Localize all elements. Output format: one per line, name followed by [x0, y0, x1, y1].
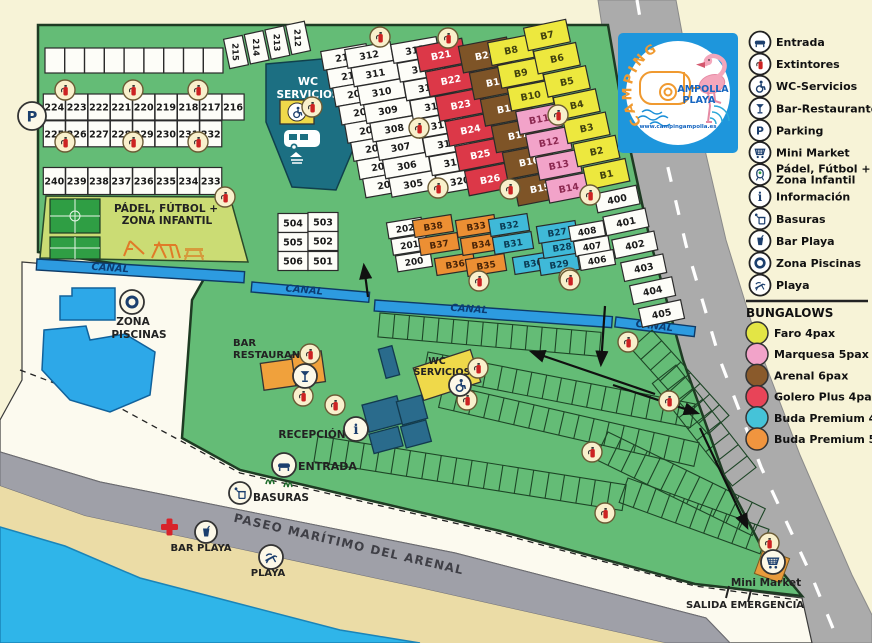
salida-emergencia-label: SALIDA EMERGENCIA — [686, 600, 804, 611]
extinguisher-icon — [325, 395, 345, 415]
svg-text:WC-Servicios: WC-Servicios — [776, 80, 858, 93]
svg-text:219: 219 — [156, 103, 176, 114]
extinguisher-icon — [55, 132, 75, 152]
camping-logo: CAMPING AMPOLLA PLAYA www.campingampolla… — [618, 33, 738, 153]
plot — [144, 48, 164, 73]
zona-piscinas-label-1: ZONA — [116, 316, 150, 328]
extinguisher-icon — [302, 97, 322, 117]
extinguisher-icon — [215, 187, 235, 207]
svg-text:213: 213 — [271, 34, 282, 52]
basuras-label: BASURAS — [253, 492, 309, 504]
svg-text:Mini Market: Mini Market — [776, 147, 850, 160]
entrada-label: ENTRADA — [298, 460, 357, 473]
plot-501: 501 — [308, 252, 338, 271]
svg-text:239: 239 — [67, 177, 87, 188]
extinguisher-icon — [428, 178, 448, 198]
svg-text:236: 236 — [134, 177, 154, 188]
legend-item: Pádel, Fútbol +Zona Infantil — [750, 163, 871, 187]
svg-text:238: 238 — [89, 177, 109, 188]
padel-zone: PÁDEL, FÚTBOL + ZONA INFANTIL — [40, 196, 248, 262]
extinguisher-icon — [370, 27, 390, 47]
svg-text:Arenal 6pax: Arenal 6pax — [774, 369, 848, 382]
mini-market-label: Mini Market — [731, 577, 801, 589]
extinguisher-icon — [468, 358, 488, 378]
svg-text:230: 230 — [156, 129, 176, 140]
extinguisher-icon — [560, 270, 580, 290]
svg-text:217: 217 — [201, 103, 221, 114]
logo-name-2: PLAYA — [683, 95, 716, 106]
plot — [85, 48, 105, 73]
logo-url: www.campingampolla.es — [639, 124, 717, 130]
svg-text:Bar-Restaurante: Bar-Restaurante — [776, 102, 872, 115]
plot-222: 222 — [88, 94, 110, 120]
svg-text:237: 237 — [111, 177, 131, 188]
plot — [45, 48, 65, 73]
padel-label-1: PÁDEL, FÚTBOL + — [114, 202, 218, 215]
plot-227: 227 — [88, 121, 110, 147]
svg-text:505: 505 — [283, 238, 303, 249]
svg-text:503: 503 — [313, 218, 333, 229]
svg-text:Faro 4pax: Faro 4pax — [774, 327, 835, 340]
svg-text:212: 212 — [291, 29, 302, 47]
plot — [203, 48, 223, 73]
svg-text:218: 218 — [178, 103, 198, 114]
svg-text:222: 222 — [89, 103, 109, 114]
svg-text:Marquesa 5pax: Marquesa 5pax — [774, 348, 869, 361]
extinguisher-icon — [438, 28, 458, 48]
svg-text:233: 233 — [201, 177, 221, 188]
extinguisher-icon — [55, 80, 75, 100]
extinguisher-icon — [300, 344, 320, 364]
plot-502: 502 — [308, 232, 338, 251]
plot — [104, 48, 124, 73]
basuras-icon — [229, 482, 251, 504]
mini-market-icon — [761, 550, 785, 574]
playa-icon — [259, 545, 283, 569]
svg-text:502: 502 — [313, 237, 333, 248]
logo-name-1: AMPOLLA — [677, 84, 729, 95]
extinguisher-icon — [595, 503, 615, 523]
svg-text:240: 240 — [44, 177, 64, 188]
plot-503: 503 — [308, 213, 338, 232]
svg-text:220: 220 — [134, 103, 154, 114]
playa-label: PLAYA — [251, 568, 286, 579]
recepcion-label: RECEPCIÓN — [278, 428, 345, 441]
extinguisher-icon — [293, 386, 313, 406]
svg-text:Información: Información — [776, 191, 850, 204]
extinguisher-icon — [618, 332, 638, 352]
parking-icon — [18, 102, 46, 130]
wc-top-label-1: WC — [298, 75, 318, 88]
extinguisher-icon — [500, 179, 520, 199]
plot-505: 505 — [278, 233, 308, 252]
informacion-icon — [344, 417, 368, 441]
campsite-map: P i — [0, 0, 872, 643]
plot-238: 238 — [88, 168, 110, 195]
plot — [164, 48, 184, 73]
svg-text:Buda Premium 5pax: Buda Premium 5pax — [774, 433, 872, 446]
extinguisher-icon — [123, 132, 143, 152]
svg-text:227: 227 — [89, 129, 109, 140]
camping-map-page: P i — [0, 0, 872, 643]
bar-playa-label: BAR PLAYA — [170, 543, 231, 554]
plot-234: 234 — [177, 168, 199, 195]
extinguisher-icon — [188, 80, 208, 100]
svg-text:Extintores: Extintores — [776, 58, 840, 71]
plot-235: 235 — [155, 168, 177, 195]
extinguisher-icon — [582, 442, 602, 462]
svg-text:Zona Piscinas: Zona Piscinas — [776, 257, 862, 270]
informacion-icon — [758, 190, 763, 204]
svg-text:214: 214 — [250, 38, 261, 56]
parking-icon — [756, 124, 764, 137]
svg-text:Zona Infantil: Zona Infantil — [776, 174, 855, 187]
extinguisher-icon — [580, 185, 600, 205]
bar-restaurante-icon — [293, 364, 317, 388]
plot-216: 216 — [222, 94, 244, 120]
extinguisher-icon — [548, 105, 568, 125]
extinguisher-icon — [659, 391, 679, 411]
svg-text:Playa: Playa — [776, 279, 810, 292]
svg-text:501: 501 — [313, 257, 333, 268]
svg-text:504: 504 — [283, 219, 303, 230]
svg-text:Parking: Parking — [776, 124, 823, 137]
svg-text:221: 221 — [111, 103, 131, 114]
wc-servicios-icon — [449, 374, 471, 396]
svg-text:224: 224 — [44, 103, 64, 114]
zona-piscinas-icon — [120, 290, 144, 314]
wc-mid-label-1: WC — [428, 356, 445, 367]
svg-text:506: 506 — [283, 257, 303, 268]
svg-text:Bar Playa: Bar Playa — [776, 235, 835, 248]
plot-219: 219 — [155, 94, 177, 120]
svg-text:Basuras: Basuras — [776, 213, 826, 226]
zona-piscinas-label-2: PISCINAS — [111, 329, 166, 341]
svg-text:223: 223 — [67, 103, 87, 114]
svg-text:Golero Plus 4pax: Golero Plus 4pax — [774, 391, 872, 404]
plot-239: 239 — [66, 168, 88, 195]
bungalows-title: BUNGALOWS — [746, 306, 833, 320]
extinguisher-icon — [469, 271, 489, 291]
svg-text:234: 234 — [178, 177, 198, 188]
svg-text:Buda Premium 4pax: Buda Premium 4pax — [774, 412, 872, 425]
plot — [184, 48, 204, 73]
extinguisher-icon — [188, 132, 208, 152]
plot-237: 237 — [110, 168, 132, 195]
plot — [124, 48, 144, 73]
plot-504: 504 — [278, 214, 308, 233]
plot-240: 240 — [43, 168, 65, 195]
extinguisher-icon — [123, 80, 143, 100]
plot-230: 230 — [155, 121, 177, 147]
extinguisher-icon — [409, 118, 429, 138]
svg-text:215: 215 — [229, 43, 240, 61]
bar-playa-icon — [195, 521, 217, 543]
svg-text:235: 235 — [156, 177, 176, 188]
plot-236: 236 — [133, 168, 155, 195]
svg-text:216: 216 — [223, 103, 243, 114]
svg-text:Entrada: Entrada — [776, 36, 825, 49]
bar-restaurante-label-1: BAR — [233, 338, 256, 349]
entrada-icon — [272, 453, 296, 477]
plot-506: 506 — [278, 252, 308, 271]
plot — [65, 48, 85, 73]
padel-label-2: ZONA INFANTIL — [122, 215, 213, 227]
